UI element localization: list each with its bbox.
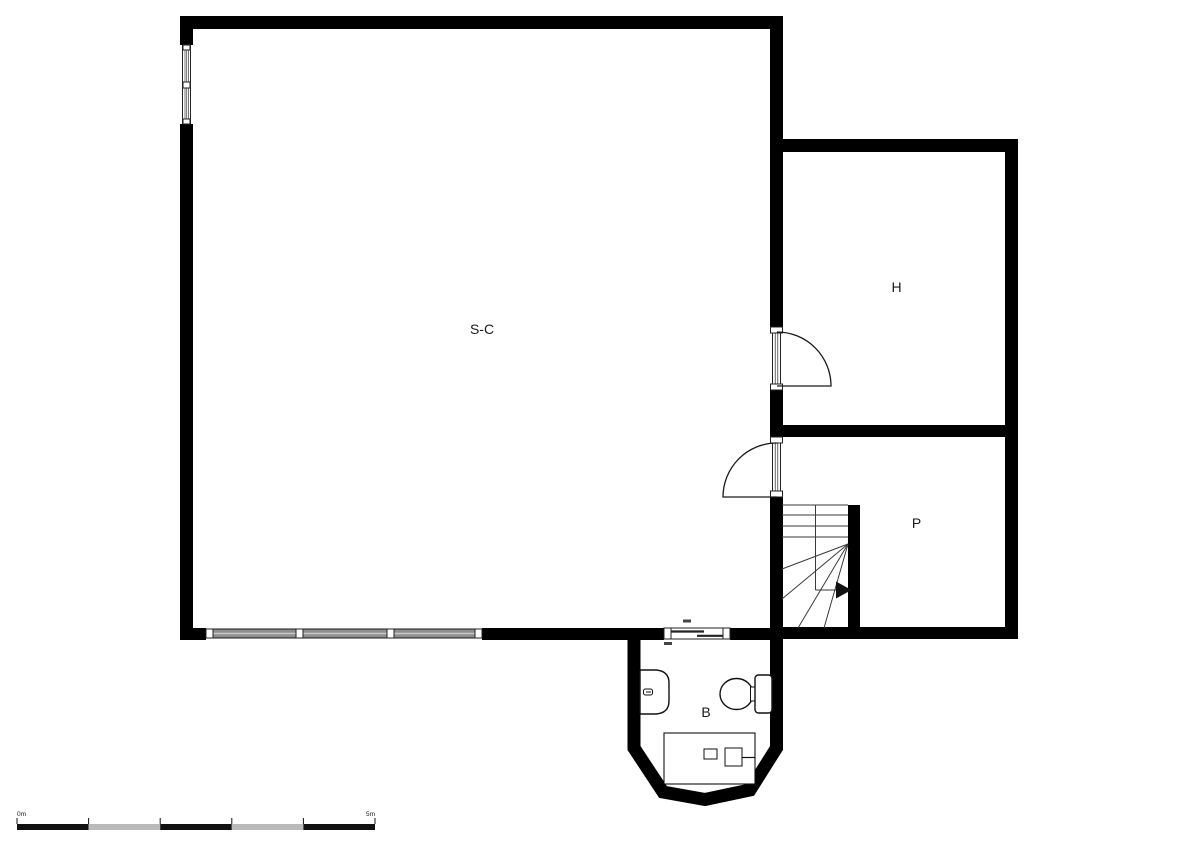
walls [180,16,1018,640]
window-divider [183,82,190,88]
window-mullion [206,629,213,638]
door-label-mark [683,620,691,623]
door-swing-arc [777,332,831,386]
room-label-p: P [912,515,921,531]
staircase [782,505,848,628]
door-main-to-p [723,437,783,497]
scale-segment-dark [160,824,232,830]
scale-bar: 0m 5m [17,811,375,830]
wall-bottom-left [180,628,206,640]
window-mullion [387,629,394,638]
wall-left-main [180,124,193,640]
window-cap [183,119,190,124]
window-left-wall [183,45,191,124]
door-label-mark [664,642,672,645]
window-band-bottom [206,629,482,638]
scale-segment-light [232,824,304,830]
toilet-icon [720,675,772,713]
bathtub-soapdish [704,749,717,759]
wall-bottom-right [783,627,1018,639]
scale-segment-light [89,824,161,830]
wall-right-main-upper [770,16,783,327]
wall-left-upper [180,16,193,45]
scale-segment-dark [303,824,375,830]
window-mullion [475,629,482,638]
scale-segment-dark [17,824,89,830]
bathtub-icon [664,733,755,784]
wall-right-main-mid [770,390,783,437]
room-label-main: S-C [470,321,494,337]
sink-icon [640,670,669,714]
floor-plan-canvas: S-C H P B 0m 5m [0,0,1200,849]
wall-h-top [783,139,1018,152]
door-swing-arc [723,443,777,497]
scale-end-label: 5m [366,811,375,818]
wall-right-main-lower [770,497,783,640]
room-label-bathroom: B [701,704,710,720]
door-leaf [773,333,781,384]
window-cap [183,45,190,50]
window-mullion [296,629,303,638]
wall-h-p-divider [783,425,1018,437]
scale-start-label: 0m [17,811,26,818]
room-label-h: H [891,279,901,295]
sliding-door [664,620,730,646]
door-main-to-h [771,327,832,390]
floor-plan-drawing: S-C H P B 0m 5m [0,0,1200,849]
wall-stair-right [848,505,860,628]
bathroom-fixtures [640,670,772,784]
wall-top-main [180,16,783,29]
bathtub-drain-box [725,748,742,766]
door-leaf [773,443,781,491]
wall-right-outer [1005,139,1018,639]
